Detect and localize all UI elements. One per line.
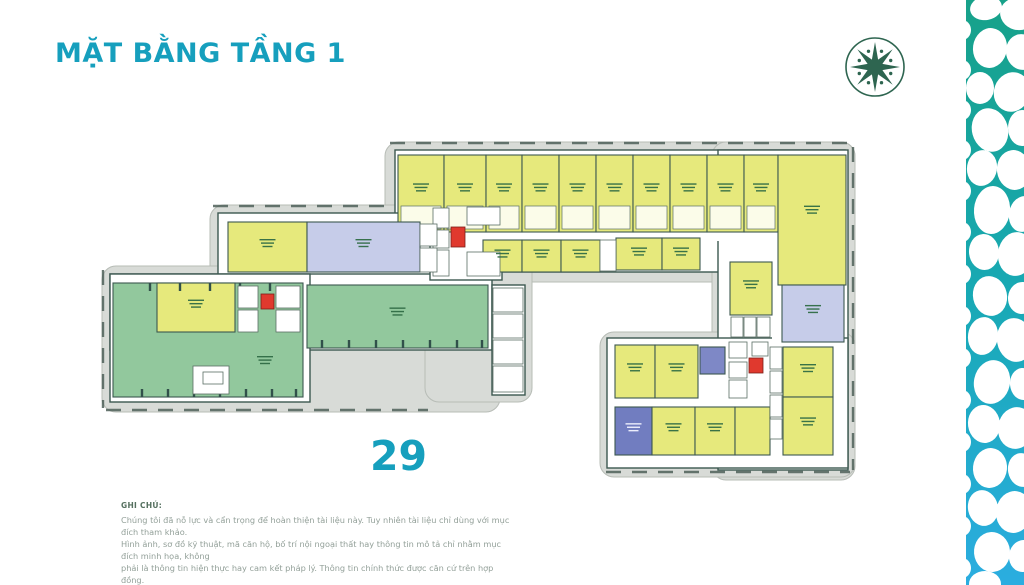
core-room xyxy=(203,372,223,384)
unit-label-mark xyxy=(800,417,816,418)
unit-label-mark xyxy=(537,256,547,257)
unit-label-mark xyxy=(576,256,586,257)
unit-label-mark xyxy=(533,183,549,184)
unit-label-mark xyxy=(260,363,270,364)
unit-label-mark xyxy=(630,370,640,371)
unit-label-mark xyxy=(391,311,404,312)
unit-label-mark xyxy=(188,300,204,301)
unit-label-mark xyxy=(669,430,679,431)
logo-dot xyxy=(880,50,883,53)
floor-plan-unit xyxy=(522,240,561,272)
logo-dot xyxy=(858,72,861,75)
logo-dot xyxy=(889,72,892,75)
core-room xyxy=(238,310,258,332)
unit-label-mark xyxy=(390,307,406,308)
floor-plan-unit xyxy=(730,262,772,315)
core-room xyxy=(729,362,747,378)
core-room xyxy=(276,286,300,308)
core-room xyxy=(744,317,756,337)
unit-label-mark xyxy=(534,249,550,250)
unit-label-mark xyxy=(673,247,689,248)
unit-label-mark xyxy=(681,183,697,184)
unit-label-mark xyxy=(806,209,819,210)
footnote-line: phải là thông tin hiện thực hay cam kết … xyxy=(121,562,511,585)
unit-bathroom xyxy=(525,206,556,229)
unit-bathroom xyxy=(636,206,667,229)
elevator-shaft xyxy=(451,227,465,247)
decorative-edge-pattern xyxy=(960,0,1024,585)
unit-label-mark xyxy=(570,183,586,184)
unit-label-mark xyxy=(257,356,273,357)
unit-bathroom xyxy=(562,206,593,229)
unit-label-mark xyxy=(610,190,620,191)
unit-label-mark xyxy=(496,183,512,184)
floor-plan-unit xyxy=(616,238,662,270)
floor-plan-unit xyxy=(782,285,844,342)
unit-bathroom xyxy=(673,206,704,229)
unit-label-mark xyxy=(357,242,370,243)
unit-label-mark xyxy=(631,247,647,248)
unit-label-mark xyxy=(457,183,473,184)
unit-label-mark xyxy=(803,371,813,372)
unit-label-mark xyxy=(719,187,732,188)
unit-label-mark xyxy=(626,423,642,424)
floor-plan-unit xyxy=(655,345,698,398)
core-room xyxy=(600,240,616,271)
core-room xyxy=(493,314,523,338)
unit-label-mark xyxy=(676,254,686,255)
unit-label-mark xyxy=(498,187,511,188)
brochure-page: MẶT BẰNG TẦNG 1 29 GHI CHÚ: Chúng tôi đã… xyxy=(0,0,1024,585)
unit-label-mark xyxy=(191,306,201,307)
core-room xyxy=(276,310,300,332)
unit-label-mark xyxy=(721,190,731,191)
elevator-shaft xyxy=(749,358,763,373)
unit-label-mark xyxy=(629,430,639,431)
unit-label-mark xyxy=(756,190,766,191)
core-room xyxy=(729,342,747,358)
floor-plan-unit xyxy=(662,238,700,270)
unit-label-mark xyxy=(804,206,820,207)
logo-star xyxy=(850,42,900,92)
unit-label-mark xyxy=(535,253,548,254)
unit-label-mark xyxy=(261,242,274,243)
unit-label-mark xyxy=(393,314,403,315)
floor-plan-unit xyxy=(561,240,600,272)
unit-label-mark xyxy=(743,280,759,281)
unit-label-mark xyxy=(803,424,813,425)
floor-plan-unit xyxy=(700,347,725,374)
floor-plan-unit xyxy=(783,397,833,455)
unit-label-mark xyxy=(259,359,272,360)
unit-label-mark xyxy=(670,367,683,368)
unit-label-mark xyxy=(534,187,547,188)
core-room xyxy=(467,252,500,276)
unit-label-mark xyxy=(536,190,546,191)
unit-label-mark xyxy=(413,183,429,184)
unit-label-mark xyxy=(800,364,816,365)
unit-label-mark xyxy=(573,249,589,250)
footnote-line: Chúng tôi đã nỗ lực và cẩn trọng để hoàn… xyxy=(121,514,511,538)
unit-label-mark xyxy=(707,423,723,424)
unit-label-mark xyxy=(745,284,758,285)
unit-label-mark xyxy=(499,190,509,191)
logo-dot xyxy=(867,81,870,84)
core-room xyxy=(493,288,523,312)
unit-label-mark xyxy=(644,183,660,184)
logo-dot xyxy=(858,59,861,62)
core-room xyxy=(493,340,523,364)
unit-label-mark xyxy=(495,249,511,250)
plan-number: 29 xyxy=(370,432,427,480)
logo-dot xyxy=(889,59,892,62)
unit-bathroom xyxy=(710,206,741,229)
unit-label-mark xyxy=(356,239,372,240)
unit-label-mark xyxy=(805,305,821,306)
unit-label-mark xyxy=(359,246,369,247)
unit-label-mark xyxy=(669,363,685,364)
elevator-shaft xyxy=(261,294,274,309)
footnote: GHI CHÚ: Chúng tôi đã nỗ lực và cẩn trọn… xyxy=(121,501,511,585)
unit-label-mark xyxy=(684,190,694,191)
unit-label-mark xyxy=(667,427,680,428)
unit-label-mark xyxy=(574,253,587,254)
core-room xyxy=(420,224,437,246)
unit-label-mark xyxy=(709,427,722,428)
unit-label-mark xyxy=(416,190,426,191)
star-emblem-logo xyxy=(841,33,909,101)
unit-label-mark xyxy=(607,183,623,184)
floor-plan-unit xyxy=(615,345,655,398)
core-room xyxy=(770,395,782,417)
core-room xyxy=(420,248,437,272)
unit-label-mark xyxy=(746,287,756,288)
unit-label-mark xyxy=(672,370,682,371)
core-room xyxy=(757,317,770,337)
unit-label-mark xyxy=(190,303,203,304)
unit-label-mark xyxy=(260,239,276,240)
pattern-cell xyxy=(966,72,994,104)
unit-label-mark xyxy=(608,187,621,188)
floor-plan-unit xyxy=(307,285,488,348)
unit-bathroom xyxy=(747,206,775,229)
core-room xyxy=(467,207,500,225)
unit-label-mark xyxy=(498,256,508,257)
unit-label-mark xyxy=(263,246,273,247)
unit-label-mark xyxy=(627,363,643,364)
unit-label-mark xyxy=(459,187,472,188)
floor-plan-unit xyxy=(778,155,846,285)
unit-label-mark xyxy=(415,187,428,188)
core-room xyxy=(770,347,782,369)
core-room xyxy=(238,286,258,308)
unit-label-mark xyxy=(807,308,820,309)
unit-label-mark xyxy=(573,190,583,191)
unit-label-mark xyxy=(666,423,682,424)
core-room xyxy=(729,380,747,398)
unit-label-mark xyxy=(808,312,818,313)
footnote-line: Hình ảnh, sơ đồ kỹ thuật, mã căn hộ, bố … xyxy=(121,538,511,562)
core-room xyxy=(770,371,782,393)
core-room xyxy=(770,419,782,439)
unit-label-mark xyxy=(675,251,688,252)
unit-label-mark xyxy=(807,212,817,213)
unit-label-mark xyxy=(682,187,695,188)
unit-label-mark xyxy=(718,183,734,184)
page-title: MẶT BẰNG TẦNG 1 xyxy=(55,38,346,69)
unit-label-mark xyxy=(633,251,646,252)
core-room xyxy=(731,317,743,337)
unit-label-mark xyxy=(755,187,768,188)
unit-label-mark xyxy=(647,190,657,191)
floor-plan-unit xyxy=(735,407,770,455)
unit-label-mark xyxy=(496,253,509,254)
unit-label-mark xyxy=(802,367,815,368)
core-room xyxy=(493,366,523,392)
unit-label-mark xyxy=(753,183,769,184)
unit-label-mark xyxy=(710,430,720,431)
logo-dot xyxy=(880,81,883,84)
unit-label-mark xyxy=(460,190,470,191)
unit-label-mark xyxy=(645,187,658,188)
unit-label-mark xyxy=(627,427,640,428)
unit-bathroom xyxy=(599,206,630,229)
unit-label-mark xyxy=(634,254,644,255)
footnote-heading: GHI CHÚ: xyxy=(121,501,511,510)
unit-label-mark xyxy=(629,367,642,368)
unit-label-mark xyxy=(802,421,815,422)
logo-dot xyxy=(867,50,870,53)
unit-label-mark xyxy=(571,187,584,188)
core-room xyxy=(752,342,768,356)
